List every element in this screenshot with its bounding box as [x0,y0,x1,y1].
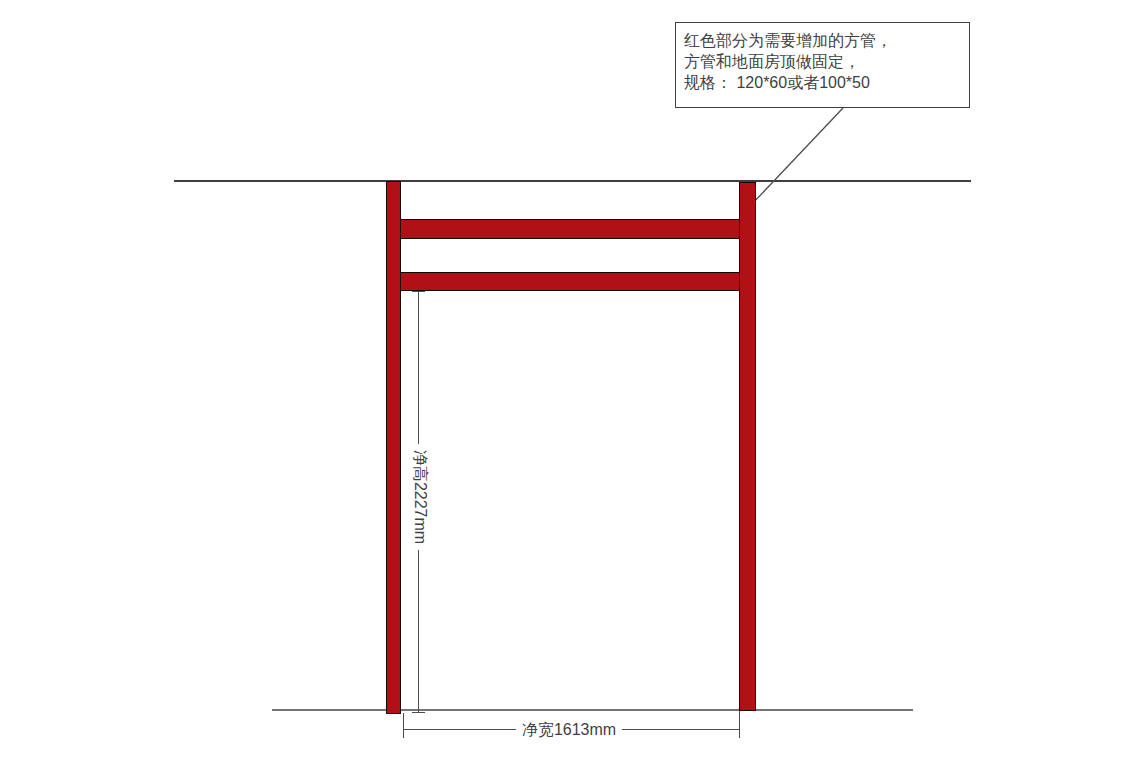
top-square-tube-beam [400,219,741,239]
leader-line [752,108,843,204]
annotation-line-3: 规格： 120*60或者100*50 [684,72,961,93]
height-dimension-tick-top [412,291,425,292]
right-square-tube-post [739,182,756,711]
leader-line-layer [0,0,1133,768]
width-dimension-tick-right [739,711,740,738]
width-dimension-label: 净宽1613mm [516,719,622,742]
ceiling-line [174,180,971,182]
middle-square-tube-beam [398,272,740,291]
height-dimension-tick-bottom [412,712,425,713]
floor-line [272,709,913,711]
annotation-line-2: 方管和地面房顶做固定， [684,51,961,72]
height-dimension-label: 净高2227mm [408,444,431,550]
drawing-canvas: 净高2227mm 净宽1613mm 红色部分为需要增加的方管， 方管和地面房顶做… [0,0,1133,768]
annotation-box: 红色部分为需要增加的方管， 方管和地面房顶做固定， 规格： 120*60或者10… [675,22,970,108]
width-dimension-tick-left [403,713,404,738]
left-square-tube-post [386,181,401,714]
annotation-line-1: 红色部分为需要增加的方管， [684,30,961,51]
